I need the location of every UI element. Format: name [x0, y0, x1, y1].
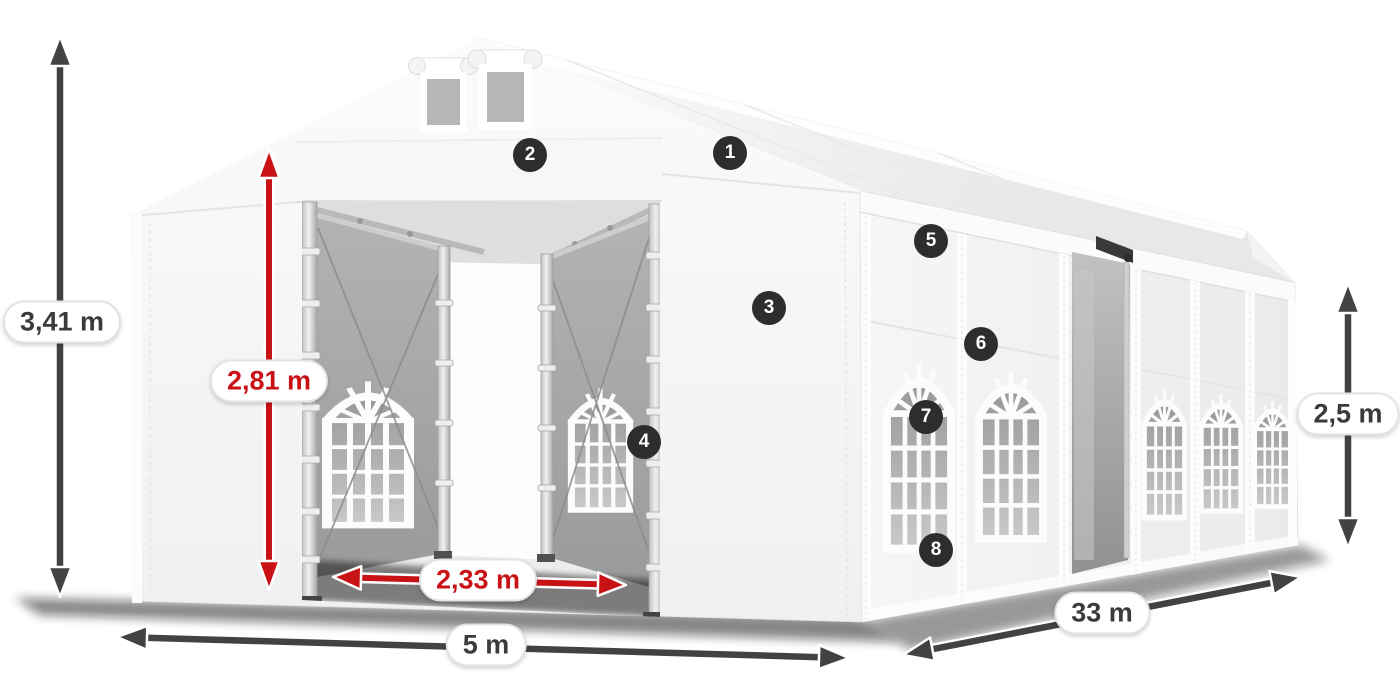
tent-illustration	[0, 0, 1400, 700]
callout-5: 5	[914, 224, 948, 258]
callout-8: 8	[919, 533, 953, 567]
side-door-opening	[1072, 236, 1133, 574]
callout-4: 4	[627, 425, 661, 459]
dimension-label-door-width: 2,33 m	[419, 558, 537, 601]
callout-1: 1	[713, 136, 747, 170]
callout-3: 3	[752, 291, 786, 325]
dimension-label-front-width: 5 m	[446, 623, 527, 666]
dimension-label-side-height: 2,5 m	[1296, 392, 1399, 435]
callout-6: 6	[964, 327, 998, 361]
dimension-label-side-length: 33 m	[1054, 591, 1150, 634]
callout-2: 2	[513, 138, 547, 172]
entrance-header-band	[297, 138, 662, 203]
dimension-label-total-height: 3,41 m	[3, 300, 121, 343]
callout-7: 7	[909, 400, 943, 434]
dimension-label-door-height: 2,81 m	[210, 359, 328, 402]
tent-dimensions-diagram: 3,41 m 2,81 m 2,33 m 5 m 33 m 2,5 m 1 2 …	[0, 0, 1400, 700]
